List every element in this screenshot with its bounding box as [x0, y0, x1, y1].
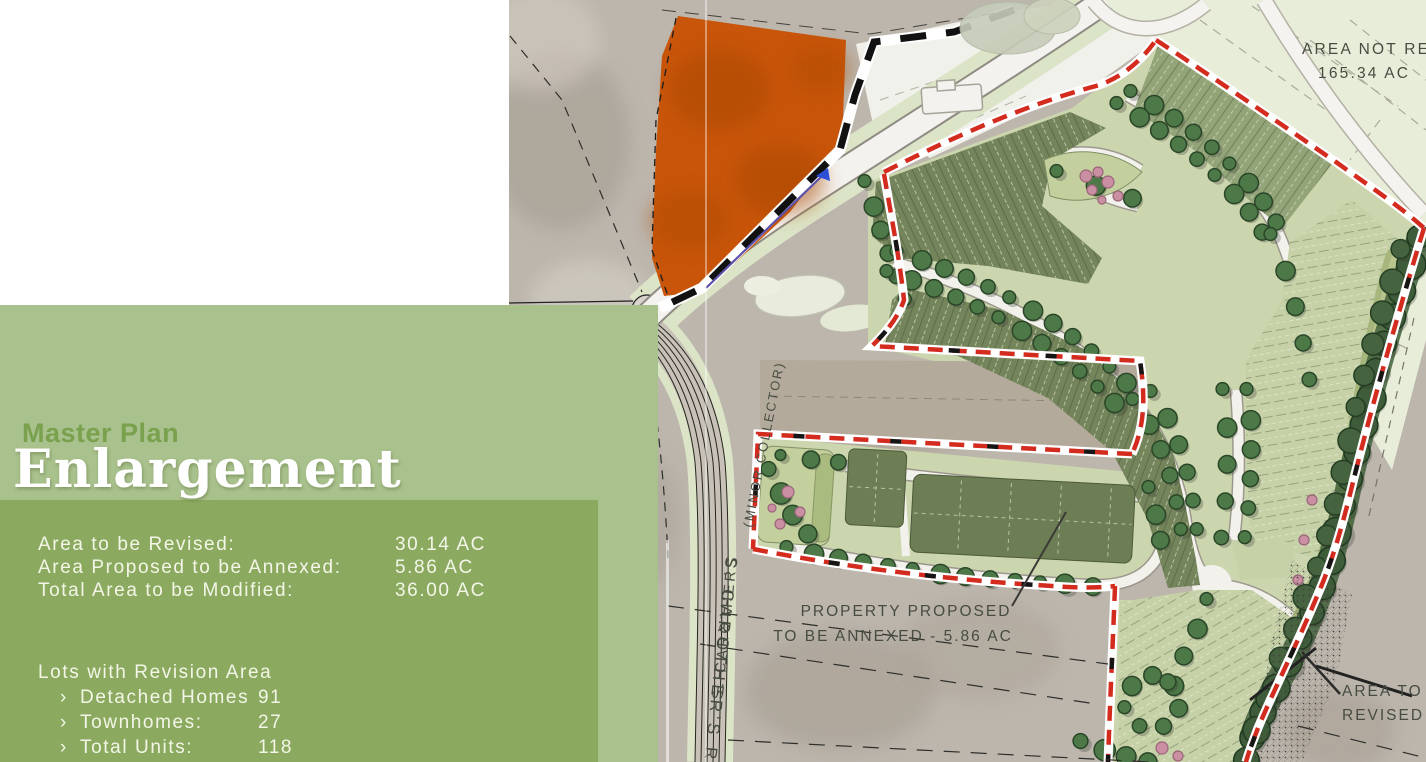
bullet-icon: ›	[60, 710, 80, 735]
lot-label: Townhomes:	[80, 710, 258, 735]
stat-label: Area Proposed to be Annexed:	[38, 556, 395, 579]
stat-value: 30.14 AC	[395, 533, 486, 556]
stat-label: Total Area to be Modified:	[38, 579, 395, 602]
area-not-revised-label: AREA NOT REVISED	[1302, 41, 1426, 58]
stat-row: Area to be Revised: 30.14 AC	[38, 533, 486, 556]
annex-label-line1: PROPERTY PROPOSED	[801, 603, 1012, 620]
stat-row: Total Area to be Modified: 36.00 AC	[38, 579, 486, 602]
lots-heading: Lots with Revision Area	[38, 660, 293, 685]
area-revised-label-line2: REVISED -	[1342, 707, 1426, 724]
lot-row: › Total Units: 118	[38, 735, 293, 760]
area-not-revised-acreage: 165.34 AC	[1318, 65, 1410, 82]
page-seam	[705, 0, 707, 762]
area-revised-label-line1: AREA TO BE	[1342, 683, 1426, 700]
area-stats: Area to be Revised: 30.14 AC Area Propos…	[38, 533, 486, 602]
bullet-icon: ›	[60, 735, 80, 760]
stat-value: 5.86 AC	[395, 556, 474, 579]
lot-row: › Detached Homes 91	[38, 685, 293, 710]
annex-label-line2: TO BE ANNEXED - 5.86 AC	[773, 628, 1013, 645]
master-plan-sheet: AREA NOT REVISED 165.34 AC PROPERTY PROP…	[0, 0, 1426, 762]
bullet-icon: ›	[60, 685, 80, 710]
sheet-margin	[0, 0, 509, 306]
lot-value: 118	[258, 735, 293, 760]
lot-label: Total Units:	[80, 735, 258, 760]
lot-value: 91	[258, 685, 282, 710]
stat-value: 36.00 AC	[395, 579, 486, 602]
stat-row: Area Proposed to be Annexed: 5.86 AC	[38, 556, 486, 579]
page-seam-2	[666, 540, 669, 762]
lots-summary: Lots with Revision Area › Detached Homes…	[38, 660, 293, 760]
lot-row: › Townhomes: 27	[38, 710, 293, 735]
page-title: Enlargement	[13, 444, 402, 496]
stat-label: Area to be Revised:	[38, 533, 395, 556]
lot-value: 27	[258, 710, 282, 735]
lot-label: Detached Homes	[80, 685, 258, 710]
